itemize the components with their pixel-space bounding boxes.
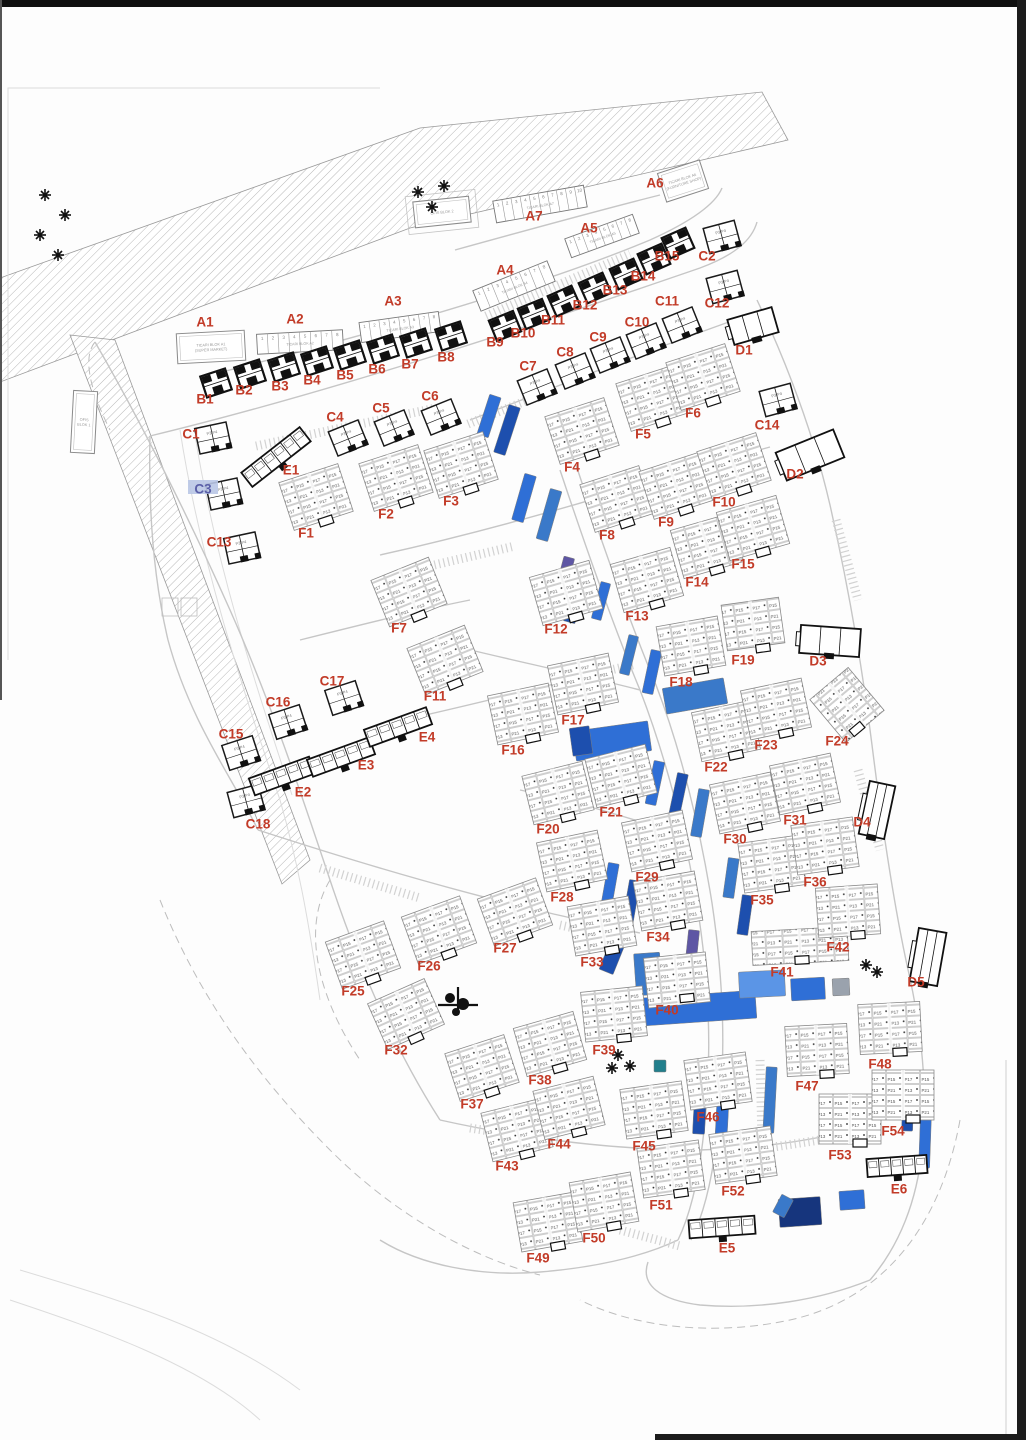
block-label-F47: F47 xyxy=(795,1079,818,1094)
block-label-B5: B5 xyxy=(336,368,354,383)
block-label-F1: F1 xyxy=(298,526,314,541)
block-F23 xyxy=(740,678,811,740)
block-label-E3: E3 xyxy=(358,758,375,773)
block-label-E5: E5 xyxy=(719,1241,736,1256)
block-label-A5: A5 xyxy=(580,221,598,236)
block-label-F41: F41 xyxy=(770,965,794,980)
block-label-C18: C18 xyxy=(246,817,271,832)
pool xyxy=(839,1190,865,1211)
scan-edge-top xyxy=(0,0,1026,7)
substation-F52 xyxy=(746,1174,761,1184)
block-label-E6: E6 xyxy=(891,1182,908,1197)
block-label-B3: B3 xyxy=(271,379,289,394)
pool xyxy=(654,1060,666,1072)
substation-F51 xyxy=(674,1188,689,1198)
block-label-F14: F14 xyxy=(685,575,709,590)
strip-block-A5: 12345678TICARI BLOK A5 xyxy=(565,214,639,257)
block-label-B13: B13 xyxy=(603,283,628,298)
contour-line xyxy=(20,1270,300,1390)
pool xyxy=(790,977,825,1001)
block-F38 xyxy=(513,1011,586,1076)
block-label-C11: C11 xyxy=(655,294,680,309)
substation-F42 xyxy=(851,931,866,940)
road xyxy=(646,1262,870,1306)
block-label-C1: C1 xyxy=(182,427,200,442)
block-label-B1: B1 xyxy=(196,392,214,407)
block-F2 xyxy=(359,445,433,512)
substation-F47 xyxy=(820,1070,834,1079)
block-label-F28: F28 xyxy=(550,890,574,905)
pool xyxy=(569,726,593,757)
block-label-F8: F8 xyxy=(599,528,615,543)
plan-sheet: P17P15P13P2112345678TICARI BLOK A2123456… xyxy=(0,0,1026,1440)
block-label-F29: F29 xyxy=(635,870,658,885)
tree-icon xyxy=(39,189,51,201)
block-F4 xyxy=(545,398,619,465)
block-F24 xyxy=(810,667,884,742)
block-label-F2: F2 xyxy=(378,507,394,522)
block-label-D3: D3 xyxy=(809,654,827,669)
substation-F33 xyxy=(604,945,619,955)
block-label-F30: F30 xyxy=(723,832,746,847)
substation-F48 xyxy=(893,1048,907,1057)
block-F32 xyxy=(368,979,445,1050)
block-label-C12: C12 xyxy=(705,296,730,311)
block-label-B15: B15 xyxy=(655,249,680,264)
block-label-F17: F17 xyxy=(561,713,584,728)
block-F27 xyxy=(477,878,552,946)
site-plan-svg: P17P15P13P2112345678TICARI BLOK A2123456… xyxy=(0,0,1026,1440)
block-label-F53: F53 xyxy=(828,1148,852,1163)
block-label-F45: F45 xyxy=(632,1139,656,1154)
building-OFIS1: OFISBLOK 1 xyxy=(70,390,97,453)
pool xyxy=(832,978,850,996)
block-F11 xyxy=(407,625,483,695)
block-label-F26: F26 xyxy=(417,959,441,974)
villa-C1: P3 P4 xyxy=(195,422,233,455)
block-label-C2: C2 xyxy=(698,249,715,264)
villa-C16: P3 P4 xyxy=(269,704,309,740)
pool xyxy=(512,473,537,522)
block-label-C10: C10 xyxy=(625,315,650,330)
pool xyxy=(723,857,739,898)
building-A1: TICARI BLOK A1(SUPER MARKET) xyxy=(176,330,245,364)
block-label-F16: F16 xyxy=(501,743,525,758)
block-F47 xyxy=(785,1023,850,1076)
block-label-C15: C15 xyxy=(219,727,244,742)
block-F31 xyxy=(769,753,840,815)
strip-block-A2: 12345678TICARI BLOK A2 xyxy=(257,330,344,354)
block-label-F49: F49 xyxy=(526,1251,549,1266)
tree-icon xyxy=(624,1060,636,1072)
block-label-D4: D4 xyxy=(853,815,871,830)
substation-F54 xyxy=(906,1115,920,1123)
block-label-F39: F39 xyxy=(592,1043,615,1058)
contour-line xyxy=(10,1300,260,1420)
tree-icon xyxy=(606,1062,618,1074)
block-label-C3: C3 xyxy=(194,482,212,497)
block-label-A1: A1 xyxy=(196,315,214,330)
block-F33 xyxy=(567,896,637,956)
block-label-C13: C13 xyxy=(207,535,232,550)
block-label-B7: B7 xyxy=(401,357,418,372)
block-label-B9: B9 xyxy=(486,335,503,350)
block-label-F46: F46 xyxy=(696,1110,720,1125)
block-label-F35: F35 xyxy=(750,893,774,908)
block-label-F5: F5 xyxy=(635,427,651,442)
block-label-F19: F19 xyxy=(731,653,754,668)
substation-F53 xyxy=(853,1139,867,1147)
block-F39 xyxy=(581,986,648,1042)
block-label-F7: F7 xyxy=(391,621,407,636)
block-label-B6: B6 xyxy=(368,362,386,377)
block-label-F4: F4 xyxy=(564,460,580,475)
block-F28 xyxy=(536,830,607,892)
scan-edge-right xyxy=(1017,0,1026,1440)
block-label-C9: C9 xyxy=(589,330,606,345)
tree-icon xyxy=(871,966,883,978)
playground-icon xyxy=(438,987,478,1016)
block-label-F44: F44 xyxy=(547,1137,571,1152)
block-label-F10: F10 xyxy=(712,495,735,510)
block-label-D2: D2 xyxy=(786,467,803,482)
block-F37 xyxy=(445,1035,519,1102)
block-label-A6: A6 xyxy=(646,176,664,191)
block-label-D5: D5 xyxy=(907,975,925,990)
substation-F36 xyxy=(828,865,843,875)
block-label-F24: F24 xyxy=(825,734,849,749)
svg-text:BLOK 1: BLOK 1 xyxy=(77,423,90,428)
block-F16 xyxy=(487,683,558,745)
block-label-F43: F43 xyxy=(495,1159,519,1174)
substation-F46 xyxy=(721,1100,736,1110)
block-label-F22: F22 xyxy=(704,760,727,775)
block-label-B4: B4 xyxy=(303,373,321,388)
block-F26 xyxy=(401,896,476,964)
pool xyxy=(619,634,638,675)
block-F30 xyxy=(709,772,780,834)
terrace-E6 xyxy=(866,1155,928,1183)
villa-C4: P3 P4 xyxy=(328,420,369,457)
villa-C6: P3 P4 xyxy=(421,399,462,436)
block-label-C7: C7 xyxy=(519,359,536,374)
block-F45 xyxy=(620,1081,688,1139)
block-F3 xyxy=(424,432,498,499)
block-label-C6: C6 xyxy=(421,389,439,404)
block-F17 xyxy=(547,653,618,715)
substation-F18 xyxy=(693,665,708,675)
block-label-F20: F20 xyxy=(536,822,559,837)
apartment-D2 xyxy=(772,429,846,485)
block-label-F37: F37 xyxy=(460,1097,483,1112)
block-label-F51: F51 xyxy=(649,1198,673,1213)
scan-edge-left xyxy=(0,0,2,700)
block-label-F50: F50 xyxy=(582,1231,605,1246)
block-F25 xyxy=(325,921,400,989)
villa-B3 xyxy=(268,353,300,382)
block-label-F18: F18 xyxy=(669,675,693,690)
block-label-B8: B8 xyxy=(437,350,455,365)
svg-text:OFIS: OFIS xyxy=(80,418,90,422)
block-label-F36: F36 xyxy=(803,875,827,890)
block-label-B11: B11 xyxy=(541,313,566,328)
block-label-F15: F15 xyxy=(731,557,755,572)
block-F40 xyxy=(644,952,711,1008)
block-label-F21: F21 xyxy=(599,805,623,820)
substation-F34 xyxy=(670,920,685,930)
block-label-E4: E4 xyxy=(419,730,436,745)
apartment-D3 xyxy=(795,625,861,661)
block-F52 xyxy=(709,1126,777,1184)
tree-icon xyxy=(860,959,872,971)
tree-icon xyxy=(34,229,46,241)
substation-F41 xyxy=(795,956,809,965)
block-label-C16: C16 xyxy=(266,695,291,710)
block-label-C5: C5 xyxy=(372,401,390,416)
block-label-C4: C4 xyxy=(326,410,344,425)
block-F13 xyxy=(610,547,683,612)
block-label-F13: F13 xyxy=(625,609,649,624)
block-F19 xyxy=(721,597,785,651)
block-label-B2: B2 xyxy=(235,383,252,398)
block-label-A3: A3 xyxy=(384,294,402,309)
substation-F49 xyxy=(550,1241,565,1251)
block-label-F52: F52 xyxy=(721,1184,744,1199)
substation-F50 xyxy=(606,1221,621,1231)
villa-C11: P3 P4 xyxy=(662,307,703,344)
block-F42 xyxy=(815,884,880,938)
substation-F19 xyxy=(756,643,771,653)
block-label-F3: F3 xyxy=(443,494,459,509)
parking-stalls xyxy=(430,546,515,566)
scan-edge-bottom xyxy=(655,1434,1026,1440)
villa-C14: P3 P4 xyxy=(759,383,798,418)
block-label-F42: F42 xyxy=(826,940,849,955)
block-F18 xyxy=(656,616,726,676)
substation-F35 xyxy=(775,883,790,893)
block-label-F33: F33 xyxy=(580,955,604,970)
block-label-B10: B10 xyxy=(511,326,536,341)
block-F54 xyxy=(872,1070,934,1120)
block-label-E2: E2 xyxy=(295,785,312,800)
block-label-F9: F9 xyxy=(658,515,674,530)
block-label-F54: F54 xyxy=(881,1124,905,1139)
block-label-F31: F31 xyxy=(783,813,807,828)
block-label-F6: F6 xyxy=(685,406,701,421)
block-F50 xyxy=(569,1172,639,1232)
block-label-A7: A7 xyxy=(525,209,542,224)
pool xyxy=(690,788,709,837)
substation-F39 xyxy=(617,1033,632,1042)
block-F20 xyxy=(522,761,594,825)
block-label-C14: C14 xyxy=(755,418,780,433)
block-label-E1: E1 xyxy=(283,463,300,478)
block-label-C8: C8 xyxy=(556,345,574,360)
block-label-B14: B14 xyxy=(631,269,656,284)
block-label-D1: D1 xyxy=(735,343,753,358)
block-label-F23: F23 xyxy=(754,738,778,753)
substation-F40 xyxy=(680,993,695,1002)
tree-icon xyxy=(59,209,71,221)
block-label-F32: F32 xyxy=(384,1043,407,1058)
block-label-C17: C17 xyxy=(320,674,345,689)
pool xyxy=(763,1067,777,1133)
block-label-F12: F12 xyxy=(544,622,567,637)
block-label-A4: A4 xyxy=(496,263,514,278)
pool xyxy=(494,404,521,455)
block-label-F27: F27 xyxy=(493,941,516,956)
block-label-F48: F48 xyxy=(868,1057,892,1072)
hatch-band-2 xyxy=(70,335,310,884)
block-label-F40: F40 xyxy=(655,1003,678,1018)
block-label-F25: F25 xyxy=(341,984,365,999)
block-F46 xyxy=(684,1052,752,1110)
block-label-F38: F38 xyxy=(528,1073,552,1088)
block-F48 xyxy=(858,1001,923,1054)
block-label-F34: F34 xyxy=(646,930,670,945)
block-label-F11: F11 xyxy=(424,689,447,704)
block-label-A2: A2 xyxy=(286,312,303,327)
substation-F45 xyxy=(657,1129,672,1139)
block-label-B12: B12 xyxy=(573,298,598,313)
